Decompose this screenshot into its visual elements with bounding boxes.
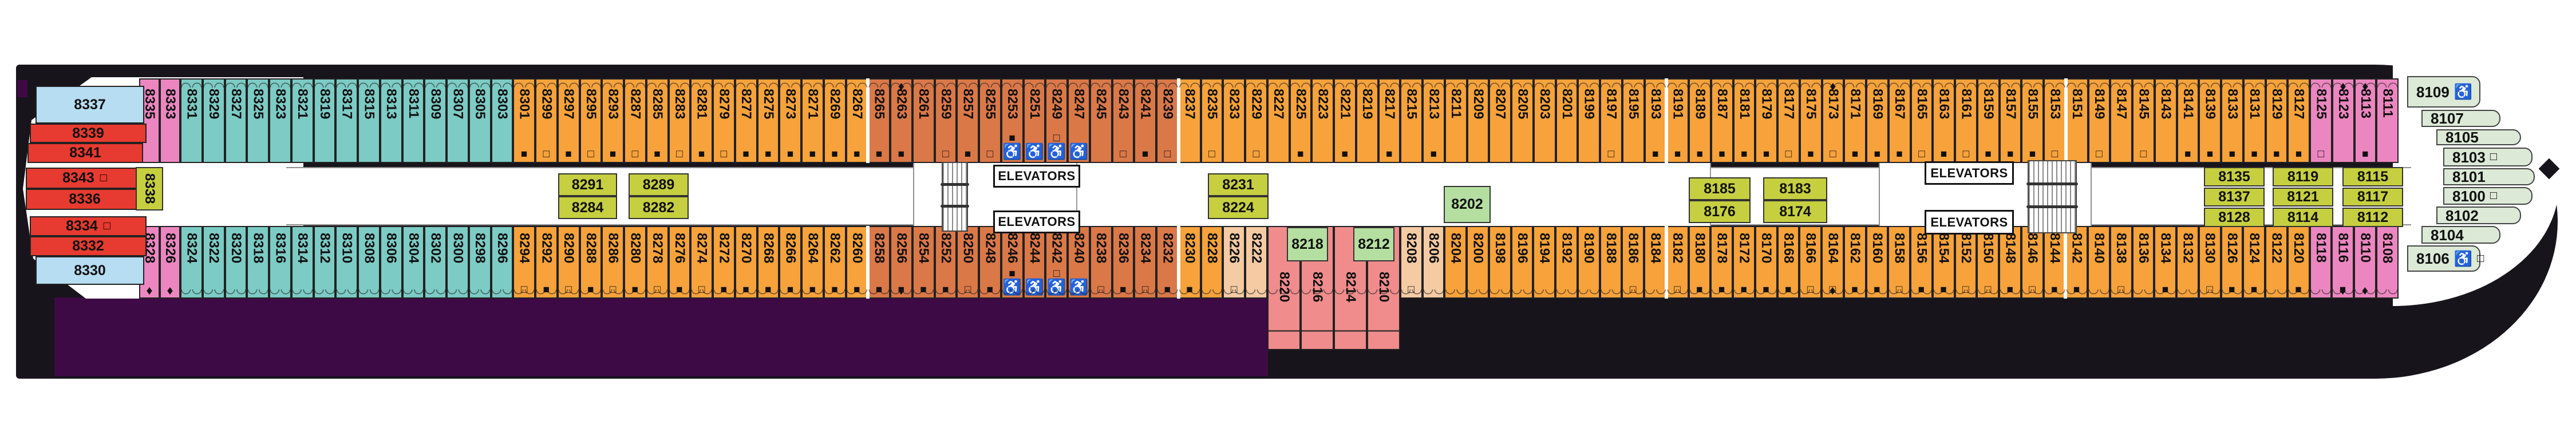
filled-square-icon: ■: [854, 149, 860, 160]
cabin-8189[interactable]: 8189■: [1689, 78, 1711, 163]
cabin-8119[interactable]: 8119: [2273, 167, 2333, 186]
cabin-8142[interactable]: 8142■: [2065, 226, 2088, 299]
cabin-number: 8343: [62, 171, 94, 185]
cabin-8236[interactable]: 8236■: [1112, 226, 1135, 299]
cabin-8126[interactable]: 8126■: [2221, 226, 2243, 299]
cabin-8194[interactable]: 8194: [1533, 226, 1555, 299]
cabin-8319[interactable]: 8319: [314, 78, 336, 163]
cabin-8203[interactable]: 8203: [1534, 78, 1556, 163]
cabin-8264[interactable]: 8264■: [801, 226, 824, 299]
cabin-8298[interactable]: 8298: [469, 226, 491, 299]
cabin-8228[interactable]: 8228: [1201, 226, 1223, 299]
cabin-number: 8177: [1781, 89, 1795, 119]
cabin-8101[interactable]: 8101: [2443, 168, 2535, 185]
cabin-8333[interactable]: 8333: [160, 78, 180, 163]
cabin-number: 8221: [1338, 89, 1352, 119]
cabin-8337[interactable]: 8337: [35, 86, 144, 124]
cabin-8188[interactable]: 8188: [1600, 226, 1622, 299]
elevators-sign-aft-starboard: ELEVATORS: [993, 210, 1080, 233]
cabin-number: 8225: [1294, 89, 1307, 119]
cabin-8286[interactable]: 8286□: [602, 226, 624, 299]
cabin-8259[interactable]: 8259□: [935, 78, 957, 163]
cabin-8171[interactable]: 8171■: [1844, 78, 1866, 163]
cabin-8170[interactable]: 8170■: [1755, 226, 1777, 299]
cabin-number: 8219: [1360, 89, 1374, 119]
cabin-number: 8228: [1205, 233, 1219, 263]
cabin-8279[interactable]: 8279□: [713, 78, 735, 163]
cabin-8253[interactable]: 8253■♿: [1001, 78, 1024, 163]
cabin-8322[interactable]: 8322: [203, 226, 225, 299]
cabin-8202[interactable]: 8202: [1444, 186, 1491, 223]
cabin-number: 8147: [2115, 89, 2128, 119]
cabin-symbols: □: [1896, 284, 1902, 295]
cabin-8277[interactable]: 8277■: [735, 78, 757, 163]
cabin-8104[interactable]: 8104: [2421, 226, 2500, 244]
cabin-number: 8314: [295, 233, 309, 263]
cabin-8230[interactable]: 8230■: [1179, 226, 1201, 299]
cabin-8152[interactable]: 8152□: [1955, 226, 1977, 299]
open-square-icon: □: [1142, 284, 1148, 295]
cabin-number: 8175: [1804, 89, 1818, 119]
cabin-symbols: ■: [2251, 284, 2257, 295]
cabin-8239[interactable]: 8239□: [1156, 78, 1179, 163]
cabin-8205[interactable]: 8205: [1511, 78, 1534, 163]
cabin-8272[interactable]: 8272■: [713, 226, 735, 299]
cabin-8302[interactable]: 8302: [424, 226, 447, 299]
cabin-8175[interactable]: 8175■: [1800, 78, 1822, 163]
open-square-icon: □: [2096, 149, 2102, 160]
cabin-8108[interactable]: 8108: [2376, 226, 2399, 299]
cabin-8242[interactable]: 8242□♿: [1045, 226, 1068, 299]
cabin-8131[interactable]: 8131■: [2243, 78, 2266, 163]
cabin-8288[interactable]: 8288■: [580, 226, 602, 299]
cabin-symbols: ■: [1763, 284, 1769, 295]
cabin-8336[interactable]: 8336: [26, 189, 144, 210]
cabin-symbols: ■: [2029, 149, 2036, 160]
cabin-8199[interactable]: 8199: [1578, 78, 1600, 163]
cabin-8178[interactable]: 8178■: [1710, 226, 1733, 299]
cabin-number: 8332: [72, 239, 104, 253]
cabin-8204[interactable]: 8204: [1444, 226, 1467, 299]
cabin-8179[interactable]: 8179■: [1755, 78, 1777, 163]
cabin-8244[interactable]: 8244♿: [1024, 226, 1046, 299]
cabin-8307[interactable]: 8307: [447, 78, 469, 163]
cabin-8184[interactable]: 8184: [1644, 226, 1666, 299]
cabin-number: 8341: [69, 146, 101, 160]
cabin-8329[interactable]: 8329: [203, 78, 225, 163]
cabin-8338[interactable]: 8338: [136, 167, 163, 210]
cabin-8117[interactable]: 8117: [2342, 188, 2403, 206]
cabin-8245[interactable]: 8245: [1090, 78, 1112, 163]
cabin-symbols: ♿: [1025, 280, 1044, 295]
cabin-8114[interactable]: 8114: [2273, 208, 2333, 227]
cabin-8153[interactable]: 8153□: [2044, 78, 2066, 163]
filled-square-icon: ■: [1940, 284, 1946, 295]
cabin-number: 8229: [1249, 89, 1263, 119]
cabin-8150[interactable]: 8150□: [1977, 226, 1999, 299]
cabin-8261[interactable]: 8261: [912, 78, 935, 163]
cabin-8201[interactable]: 8201: [1556, 78, 1578, 163]
cabin-8295[interactable]: 8295□: [580, 78, 602, 163]
cabin-8311[interactable]: 8311: [402, 78, 425, 163]
cabin-8209[interactable]: 8209: [1467, 78, 1490, 163]
cabin-8292[interactable]: 8292■: [535, 226, 558, 299]
cabin-8115[interactable]: 8115: [2342, 167, 2403, 186]
cabin-8181[interactable]: 8181■: [1733, 78, 1756, 163]
cabin-symbols: □: [587, 149, 594, 160]
cabin-8183[interactable]: 8183: [1763, 177, 1827, 200]
cabin-8240[interactable]: 8240♿: [1068, 226, 1090, 299]
cabin-8316[interactable]: 8316: [269, 226, 291, 299]
cabin-8299[interactable]: 8299□: [535, 78, 558, 163]
cabin-8343[interactable]: 8343□: [26, 168, 144, 189]
cabin-8219[interactable]: 8219: [1356, 78, 1378, 163]
cabin-8123[interactable]: 8123♦: [2332, 78, 2354, 163]
cabin-8215[interactable]: 8215: [1400, 78, 1423, 163]
cabin-symbols: □: [2140, 149, 2147, 160]
cabin-8110[interactable]: 8110♦: [2354, 226, 2376, 299]
cabin-8187[interactable]: 8187■: [1711, 78, 1733, 163]
cabin-number: 8240: [1072, 233, 1085, 263]
cabin-8165[interactable]: 8165□: [1911, 78, 1933, 163]
cabin-8166[interactable]: 8166□: [1799, 226, 1822, 299]
cabin-8285[interactable]: 8285■: [646, 78, 669, 163]
cabin-8327[interactable]: 8327: [225, 78, 247, 163]
cabin-8226[interactable]: 8226□: [1223, 226, 1245, 299]
cabin-8282[interactable]: 8282: [629, 196, 689, 219]
cabin-8118[interactable]: 8118: [2310, 226, 2332, 299]
cabin-8100[interactable]: 8100□: [2443, 187, 2532, 205]
cabin-8257[interactable]: 8257■: [957, 78, 979, 163]
cabin-8291[interactable]: 8291: [558, 173, 617, 196]
cabin-symbols: ■: [787, 284, 793, 295]
cabin-8134[interactable]: 8134■: [2154, 226, 2176, 299]
cabin-8260[interactable]: 8260■: [846, 226, 868, 299]
cabin-8106[interactable]: 8106♿□: [2407, 245, 2480, 272]
cabin-8318[interactable]: 8318: [247, 226, 269, 299]
cabin-8308[interactable]: 8308: [358, 226, 380, 299]
cabin-8297[interactable]: 8297■: [558, 78, 580, 163]
cabin-8213[interactable]: 8213■: [1423, 78, 1445, 163]
cabin-8238[interactable]: 8238□: [1090, 226, 1112, 299]
cabin-8122[interactable]: 8122: [2265, 226, 2287, 299]
cabin-8312[interactable]: 8312: [314, 226, 336, 299]
cabin-8256[interactable]: 8256♦■: [890, 226, 912, 299]
cabin-8275[interactable]: 8275■: [757, 78, 780, 163]
cabin-number: 8230: [1183, 233, 1196, 263]
cabin-8271[interactable]: 8271■: [801, 78, 824, 163]
cabin-8250[interactable]: 8250□: [957, 226, 979, 299]
cabin-8231[interactable]: 8231: [1208, 173, 1269, 196]
cabin-8281[interactable]: 8281■: [690, 78, 713, 163]
cabin-8130[interactable]: 8130□: [2199, 226, 2221, 299]
cabin-8180[interactable]: 8180■: [1689, 226, 1711, 299]
cabin-8112[interactable]: 8112: [2342, 208, 2403, 227]
cabin-8321[interactable]: 8321: [291, 78, 314, 163]
cabin-8190[interactable]: 8190: [1578, 226, 1600, 299]
cabin-symbols: □: [1630, 284, 1636, 295]
cabin-8198[interactable]: 8198: [1489, 226, 1511, 299]
cabin-8195[interactable]: 8195: [1622, 78, 1645, 163]
cabin-8161[interactable]: 8161□: [1955, 78, 1977, 163]
cabin-8141[interactable]: 8141■: [2177, 78, 2199, 163]
cabin-8162[interactable]: 8162■: [1844, 226, 1866, 299]
cabin-8233[interactable]: 8233: [1223, 78, 1245, 163]
cabin-8227[interactable]: 8227: [1267, 78, 1290, 163]
cabin-8211[interactable]: 8211: [1445, 78, 1467, 163]
cabin-8241[interactable]: 8241■: [1134, 78, 1156, 163]
cabin-8200[interactable]: 8200: [1467, 226, 1489, 299]
cabin-8102[interactable]: 8102: [2436, 206, 2521, 224]
cabin-8197[interactable]: 8197□: [1600, 78, 1622, 163]
cabin-8246[interactable]: 8246■♿: [1001, 226, 1024, 299]
cabin-number: 8311: [406, 89, 420, 118]
cabin-8160[interactable]: 8160■: [1866, 226, 1888, 299]
cabin-8301[interactable]: 8301■: [513, 78, 535, 163]
cabin-8276[interactable]: 8276■: [669, 226, 691, 299]
cabin-8191[interactable]: 8191■: [1666, 78, 1689, 163]
cabin-number: 8135: [2218, 170, 2250, 184]
cabin-8149[interactable]: 8149□: [2088, 78, 2111, 163]
cabin-number: 8333: [163, 89, 177, 119]
cabin-8133[interactable]: 8133■: [2221, 78, 2243, 163]
cabin-8317[interactable]: 8317: [335, 78, 358, 163]
cabin-8332[interactable]: 8332: [30, 236, 147, 256]
cabin-8127[interactable]: 8127■: [2287, 78, 2310, 163]
cabin-8151[interactable]: 8151: [2066, 78, 2088, 163]
open-square-icon: □: [1053, 133, 1060, 144]
cabin-symbols: □: [1963, 149, 1969, 160]
cabin-8255[interactable]: 8255□: [979, 78, 1001, 163]
cabin-symbols: ■: [920, 284, 926, 295]
cabin-number: 8265: [872, 89, 886, 119]
cabin-8145[interactable]: 8145□: [2132, 78, 2155, 163]
cabin-8306[interactable]: 8306: [380, 226, 402, 299]
cabin-number: 8181: [1737, 89, 1751, 119]
cabin-8237[interactable]: 8237: [1179, 78, 1201, 163]
cabin-8168[interactable]: 8168■: [1777, 226, 1800, 299]
cabin-8221[interactable]: 8221■: [1334, 78, 1356, 163]
open-square-icon: □: [104, 220, 110, 233]
filled-square-icon: ■: [831, 284, 837, 295]
cabin-8164[interactable]: 8164♦□: [1822, 226, 1844, 299]
open-square-icon: □: [676, 149, 682, 160]
cabin-8157[interactable]: 8157■: [2000, 78, 2022, 163]
cabin-8143[interactable]: 8143: [2155, 78, 2177, 163]
cabin-8132[interactable]: 8132: [2176, 226, 2199, 299]
cabin-8147[interactable]: 8147: [2110, 78, 2132, 163]
filled-square-icon: ■: [787, 284, 793, 295]
cabin-8265[interactable]: 8265■: [868, 78, 890, 163]
cabin-8314[interactable]: 8314: [291, 226, 314, 299]
cabin-8207[interactable]: 8207: [1489, 78, 1511, 163]
filled-square-icon: ■: [654, 149, 660, 160]
cabin-number: 8289: [643, 178, 675, 192]
cabin-number: 8116: [2336, 233, 2350, 263]
cabin-8234[interactable]: 8234□: [1134, 226, 1156, 299]
cabin-8324[interactable]: 8324: [180, 226, 203, 299]
cabin-8269[interactable]: 8269■: [824, 78, 846, 163]
cabin-8144[interactable]: 8144■: [2044, 226, 2066, 299]
cabin-8268[interactable]: 8268■: [757, 226, 780, 299]
cabin-8156[interactable]: 8156■: [1910, 226, 1933, 299]
cabin-8107[interactable]: 8107: [2421, 110, 2500, 127]
cabin-8339[interactable]: 8339: [30, 124, 147, 143]
cabin-8330[interactable]: 8330: [35, 256, 144, 285]
cabin-number: 8145: [2136, 89, 2150, 119]
cabin-8313[interactable]: 8313: [380, 78, 402, 163]
cabin-8252[interactable]: 8252■: [935, 226, 957, 299]
cabin-8225[interactable]: 8225■: [1290, 78, 1312, 163]
cabin-8289[interactable]: 8289: [629, 173, 689, 196]
cabin-8185[interactable]: 8185: [1689, 177, 1751, 200]
cabin-8284[interactable]: 8284: [558, 196, 617, 219]
cabin-8148[interactable]: 8148■: [1999, 226, 2021, 299]
cabin-8121[interactable]: 8121: [2273, 188, 2333, 206]
cabin-8254[interactable]: 8254■: [912, 226, 935, 299]
cabin-8300[interactable]: 8300: [447, 226, 469, 299]
cabin-symbols: ■: [1918, 284, 1925, 295]
cabin-8290[interactable]: 8290□: [558, 226, 580, 299]
cabin-8172[interactable]: 8172■: [1733, 226, 1755, 299]
cabin-number: 8320: [229, 233, 243, 263]
cabin-8287[interactable]: 8287□: [624, 78, 646, 163]
cabin-8206[interactable]: 8206: [1423, 226, 1445, 299]
cabin-8243[interactable]: 8243□: [1112, 78, 1135, 163]
cabin-number: 8156: [1914, 233, 1928, 263]
cabin-number: 8295: [584, 89, 598, 119]
cabin-8208[interactable]: 8208□: [1400, 226, 1423, 299]
cabin-8323[interactable]: 8323: [269, 78, 291, 163]
cabin-8315[interactable]: 8315: [358, 78, 380, 163]
cabin-8251[interactable]: 8251♿: [1024, 78, 1046, 163]
cabin-8263[interactable]: 8263♦■: [890, 78, 912, 163]
cabin-8320[interactable]: 8320: [225, 226, 247, 299]
cabin-8155[interactable]: 8155■: [2021, 78, 2044, 163]
cabin-8109[interactable]: 8109♿: [2407, 76, 2480, 108]
open-square-icon: □: [610, 284, 616, 295]
cabin-8186[interactable]: 8186□: [1622, 226, 1644, 299]
cabin-8270[interactable]: 8270■: [735, 226, 757, 299]
cabin-8304[interactable]: 8304: [402, 226, 425, 299]
cabin-8192[interactable]: 8192: [1555, 226, 1578, 299]
cabin-8294[interactable]: 8294□: [513, 226, 535, 299]
cabin-8293[interactable]: 8293■: [602, 78, 624, 163]
cabin-8218[interactable]: 8218: [1287, 227, 1328, 261]
cabin-8303[interactable]: 8303: [491, 78, 513, 163]
cabin-8280[interactable]: 8280■: [624, 226, 646, 299]
cabin-8309[interactable]: 8309: [424, 78, 447, 163]
cabin-8235[interactable]: 8235□: [1201, 78, 1223, 163]
cabin-symbols: ■: [854, 149, 860, 160]
cabin-8176[interactable]: 8176: [1689, 200, 1751, 223]
cabin-8267[interactable]: 8267■: [846, 78, 868, 163]
cabin-8222[interactable]: 8222: [1245, 226, 1267, 299]
filled-square-icon: ■: [521, 149, 527, 160]
cabin-8193[interactable]: 8193■: [1645, 78, 1667, 163]
cabin-8273[interactable]: 8273■: [779, 78, 801, 163]
cabin-8278[interactable]: 8278□: [646, 226, 669, 299]
cabin-8177[interactable]: 8177□: [1777, 78, 1800, 163]
cabin-symbols: ■: [1741, 149, 1747, 160]
cabin-8124[interactable]: 8124■: [2243, 226, 2265, 299]
cabin-8341[interactable]: 8341: [27, 143, 143, 163]
cabin-8182[interactable]: 8182□: [1666, 226, 1689, 299]
cabin-8125[interactable]: 8125□: [2310, 78, 2332, 163]
cabin-8163[interactable]: 8163■: [1933, 78, 1955, 163]
cabin-8258[interactable]: 8258■: [868, 226, 890, 299]
cabin-8334[interactable]: 8334□: [30, 216, 147, 236]
cabin-number: 8151: [2070, 89, 2084, 119]
cabin-8111[interactable]: 8111: [2376, 78, 2399, 163]
cabin-8247[interactable]: 8247♿: [1068, 78, 1090, 163]
cabin-symbols: ■♿: [1002, 268, 1022, 295]
cabin-8232[interactable]: 8232■: [1156, 226, 1179, 299]
cabin-symbols: ■: [1186, 284, 1192, 295]
cabin-8266[interactable]: 8266■: [779, 226, 801, 299]
cabin-number: 8168: [1781, 233, 1795, 263]
cabin-8262[interactable]: 8262■: [824, 226, 846, 299]
filled-square-icon: ■: [2007, 149, 2013, 160]
cabin-8326[interactable]: 8326♦: [160, 226, 180, 299]
cabin-number: 8143: [2159, 89, 2172, 119]
cabin-8154[interactable]: 8154■: [1933, 226, 1955, 299]
cabin-8158[interactable]: 8158□: [1888, 226, 1910, 299]
cabin-8229[interactable]: 8229□: [1245, 78, 1267, 163]
cabin-8103[interactable]: 8103□: [2443, 148, 2532, 166]
cabin-8105[interactable]: 8105: [2436, 129, 2521, 145]
cabin-8248[interactable]: 8248■: [979, 226, 1001, 299]
cabin-8136[interactable]: 8136: [2132, 226, 2155, 299]
open-square-icon: □: [1231, 284, 1237, 295]
cabin-8305[interactable]: 8305: [469, 78, 491, 163]
cabin-8129[interactable]: 8129■: [2266, 78, 2288, 163]
cabin-8325[interactable]: 8325: [247, 78, 269, 163]
cabin-8137[interactable]: 8137: [2204, 188, 2265, 206]
cabin-8159[interactable]: 8159■: [1977, 78, 2000, 163]
cabin-8167[interactable]: 8167■: [1888, 78, 1911, 163]
cabin-8174[interactable]: 8174: [1763, 200, 1827, 223]
cabin-8223[interactable]: 8223: [1311, 78, 1334, 163]
cabin-8249[interactable]: 8249□♿: [1045, 78, 1068, 163]
cabin-8135[interactable]: 8135: [2204, 167, 2265, 186]
cabin-8196[interactable]: 8196: [1511, 226, 1534, 299]
cabin-8139[interactable]: 8139■: [2199, 78, 2221, 163]
cabin-8283[interactable]: 8283□: [669, 78, 691, 163]
cabin-number: 8122: [2269, 233, 2283, 263]
cabin-8120[interactable]: 8120■: [2287, 226, 2310, 299]
cabin-8113[interactable]: 8113♦■: [2354, 78, 2377, 163]
cabin-8212[interactable]: 8212: [1353, 227, 1394, 261]
cabin-8224[interactable]: 8224: [1208, 196, 1269, 219]
cabin-8146[interactable]: 8146□: [2021, 226, 2044, 299]
cabin-8310[interactable]: 8310: [335, 226, 358, 299]
cabin-8331[interactable]: 8331: [180, 78, 203, 163]
cabin-8296[interactable]: 8296: [491, 226, 513, 299]
cabin-number: 8171: [1848, 89, 1862, 119]
cabin-8173[interactable]: 8173♦□: [1822, 78, 1844, 163]
cabin-8138[interactable]: 8138□: [2110, 226, 2132, 299]
cabin-8140[interactable]: 8140: [2088, 226, 2110, 299]
cabin-number: 8123: [2336, 89, 2350, 119]
cabin-symbols: ■: [1386, 149, 1392, 160]
cabin-8128[interactable]: 8128: [2204, 208, 2265, 227]
cabin-8217[interactable]: 8217■: [1378, 78, 1401, 163]
cabin-8116[interactable]: 8116♦■: [2332, 226, 2354, 299]
cabin-8274[interactable]: 8274□: [690, 226, 713, 299]
open-square-icon: □: [1963, 149, 1969, 160]
cabin-8169[interactable]: 8169■: [1866, 78, 1888, 163]
